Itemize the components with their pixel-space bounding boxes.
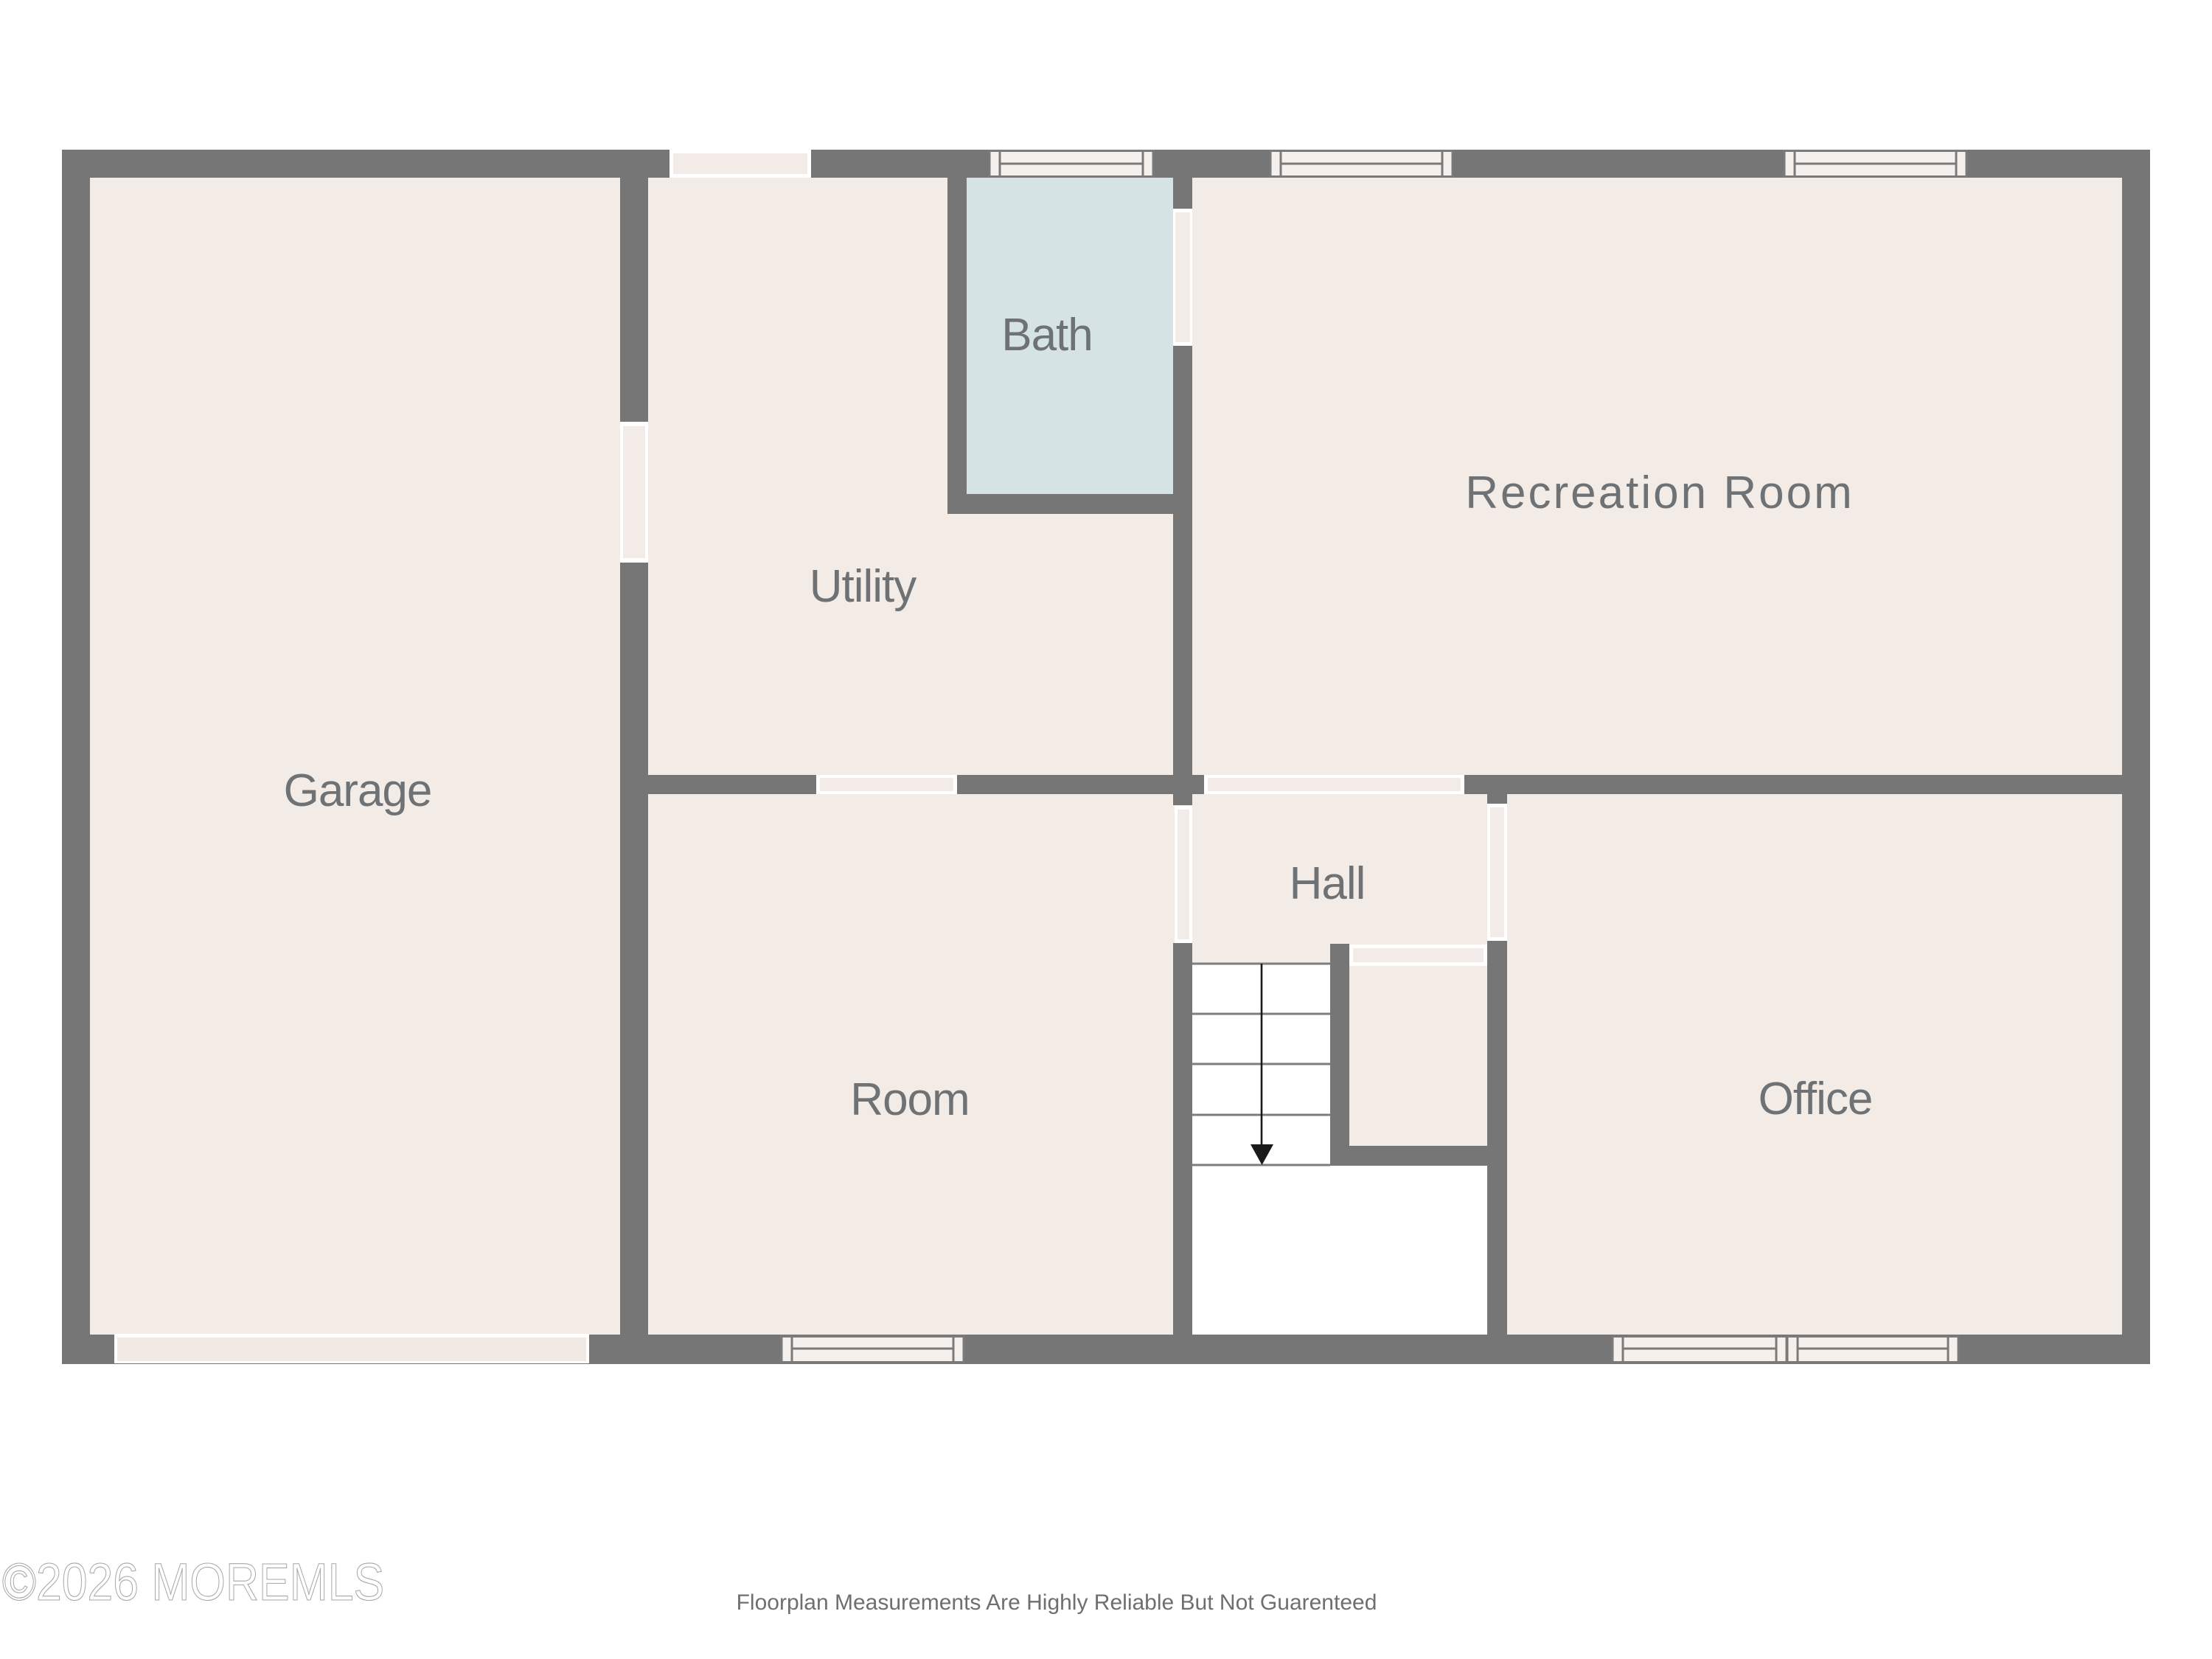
svg-text:Room: Room (850, 1074, 969, 1125)
svg-text:Recreation Room: Recreation Room (1465, 467, 1854, 518)
svg-text:Utility: Utility (810, 561, 917, 612)
svg-text:Office: Office (1759, 1074, 1873, 1124)
svg-text:Hall: Hall (1290, 858, 1366, 909)
svg-text:Garage: Garage (284, 765, 432, 816)
svg-text:Floorplan Measurements Are Hig: Floorplan Measurements Are Highly Reliab… (737, 1590, 1377, 1615)
svg-text:©2026 MOREMLS: ©2026 MOREMLS (2, 1553, 384, 1612)
svg-text:Bath: Bath (1001, 310, 1093, 361)
